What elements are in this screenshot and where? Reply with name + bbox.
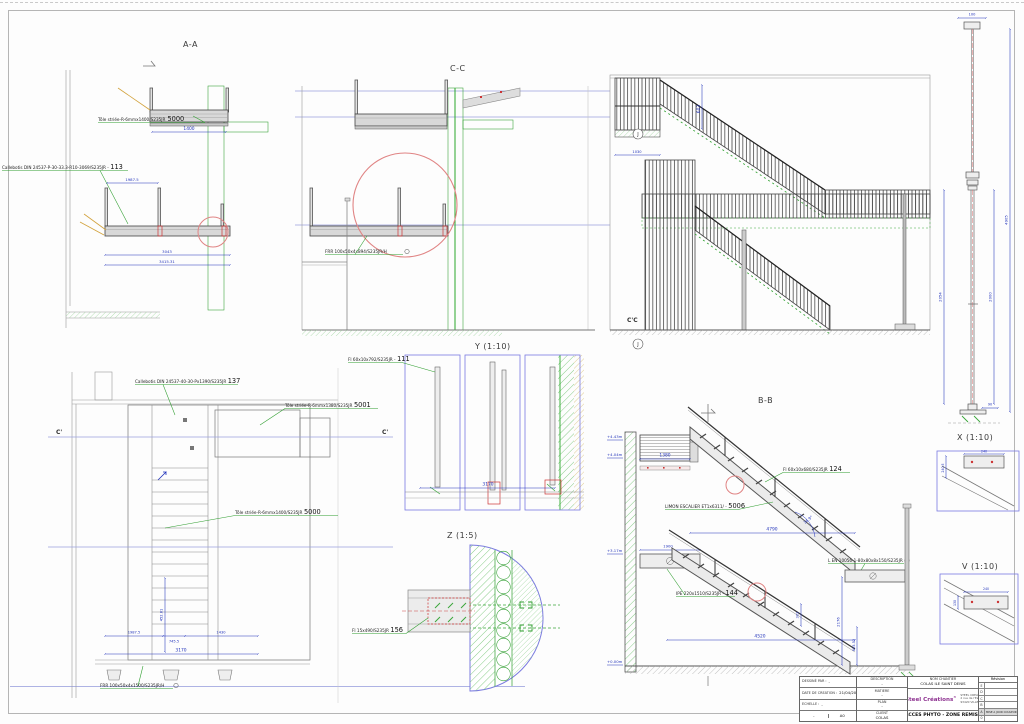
svg-text:Tôle striée-R-6mmx1400/S235JR5: Tôle striée-R-6mmx1400/S235JR5000 <box>97 115 184 123</box>
dim-label: 745.5 <box>169 640 179 644</box>
part-label: Callebotis DIN 24537-P-30-33.3-R10-3069/… <box>2 165 109 170</box>
part-mark: 124 <box>829 465 842 473</box>
part-label: LIMON ESCALIER ET1x6311/ - <box>665 504 727 509</box>
cc-floor <box>302 330 595 336</box>
field-value: - <box>813 714 814 718</box>
dim-label: 3415.31 <box>159 259 175 264</box>
revision-text <box>985 696 1017 702</box>
dim-label: 4790 <box>766 527 777 533</box>
part-label: FRR 100x50x4x1500/S235JR/H <box>100 683 164 688</box>
view-x-detail: 240 240.5 <box>934 448 1022 514</box>
dim-label: 452.81 <box>160 609 164 622</box>
revision-text <box>985 702 1017 708</box>
brand-logo: S Steel Créations® STEEL CREATIONS 2 rue… <box>908 694 978 704</box>
view-title-aa: A-A <box>183 40 198 49</box>
part-mark: 5000 <box>304 508 321 516</box>
dim-label: 3170 <box>482 482 493 488</box>
part-mark: 144 <box>725 589 738 597</box>
field-label: DATE DE CREATION : <box>802 692 837 696</box>
tb-revision-column: Révision E D C B AMISE A JOUR COULEUR - … <box>979 677 1017 721</box>
tb-main-column: NOM CHANTIERCOLAS ILE SAINT DENIS S Stee… <box>908 677 979 721</box>
level-label: +0.00m <box>607 659 623 664</box>
view-v: 240 130 <box>936 556 1022 648</box>
cc-center-wall <box>448 88 513 330</box>
dim-label: 1380 <box>659 453 670 459</box>
elev-lower-flight-railing <box>695 206 830 334</box>
section-marker: C' <box>382 429 388 436</box>
svg-text:LIMON ESCALIER ET1x6311/ -5006: LIMON ESCALIER ET1x6311/ -5006 <box>665 502 745 510</box>
bb-left-wall <box>625 432 636 672</box>
level-label: +3.17m <box>607 548 623 553</box>
svg-text:Fl 60x10x680/S235JR124: Fl 60x10x680/S235JR124 <box>783 465 842 473</box>
level-label: +4.43m <box>607 434 623 439</box>
part-label: Fl 60x10x792/S235JR - <box>348 357 396 362</box>
marker-label: J <box>636 132 638 138</box>
dim-label: 1400 <box>183 126 194 132</box>
dim-label: 100 <box>969 13 977 17</box>
elev-support-column <box>742 230 746 330</box>
field-value: - <box>829 680 830 684</box>
part-label: Tôle striée-R-6mmx1400/S235JR <box>234 510 303 515</box>
field-label: DESSINÉ PAR : <box>802 680 827 684</box>
part-mark: 156 <box>390 626 403 634</box>
elev-top-left-railing <box>615 78 660 137</box>
plan-bottom-wall <box>95 660 310 680</box>
dim-label: 1430 <box>216 631 226 635</box>
view-aa: 1400 Tôle striée-R-6mmx1400/S235JR5000 C… <box>0 56 290 336</box>
company-address: STEEL CREATIONS 2 rue de l'Espérance 934… <box>960 694 978 704</box>
cc-top-platform <box>355 80 448 129</box>
svg-text:Tôle striée-R-6mmx1400/S235JR5: Tôle striée-R-6mmx1400/S235JR5000 <box>234 508 321 516</box>
dim-label: 1030 <box>632 150 642 154</box>
view-x: 100 2054 2000 4905 90 <box>930 4 1022 452</box>
revision-text <box>985 683 1017 689</box>
y-panel-1 <box>405 355 460 510</box>
bb-limon-label: LIMON ESCALIER ET1x6311/ -5006 <box>665 502 773 510</box>
part-mark: 137 <box>228 377 241 385</box>
revision-table: Révision E D C B AMISE A JOUR COULEUR - … <box>979 677 1017 721</box>
cc-frr-label: FRR 100x50x4x894/S235JR/H <box>325 236 409 255</box>
bb-right-landing-beam <box>845 570 905 582</box>
elev-left-shaft <box>645 160 695 330</box>
revision-text: MISE A JOUR COULEUR - INDICE <box>985 709 1017 715</box>
dim-label: 240.5 <box>941 463 945 472</box>
field-value: 21/04/2023 <box>839 691 856 695</box>
svg-text:Tôle striée-R-6mmx1380/S235JR5: Tôle striée-R-6mmx1380/S235JR5001 <box>284 401 371 409</box>
v-content: 240 130 <box>944 580 1014 642</box>
dim-label: 302 <box>796 612 800 619</box>
title-block: DESSINÉ PAR :- DATE DE CREATION :21/04/2… <box>799 676 1018 722</box>
drawing-sheet: { "colors":{"dim_blue":"#2233bb","level_… <box>0 0 1024 724</box>
format-value: A0 <box>840 714 845 718</box>
elev-ground <box>610 330 930 335</box>
section-label: C'C <box>627 317 638 324</box>
part-mark: 5000 <box>167 115 184 123</box>
aa-section-arrow <box>143 61 155 66</box>
dim-label: 2176 <box>836 617 841 627</box>
plan-tole1380-label: Tôle striée-R-6mmx1380/S235JR5001 <box>260 401 378 425</box>
bb-right-post <box>899 504 915 677</box>
plan-treads <box>152 468 208 624</box>
view-cc: FRR 100x50x4x894/S235JR/H <box>295 56 610 346</box>
svg-text:Callebotis DIN 24537-P-30-33.3: Callebotis DIN 24537-P-30-33.3-R10-3069/… <box>2 163 123 171</box>
plan-shaft <box>128 405 330 660</box>
elev-marker-j-bottom: J <box>633 339 643 349</box>
dim-label: 603 <box>696 105 702 114</box>
aa-walls <box>66 70 268 328</box>
dim-label: 240 <box>981 450 987 454</box>
field-value: - <box>881 682 882 686</box>
marker-label: J <box>636 342 638 348</box>
registered-mark: ® <box>953 695 956 699</box>
field-value: - <box>881 704 882 708</box>
part-label: Fl 15x490/S235JR <box>352 628 389 633</box>
view-bb: 1380 Fl 60x10x680/S235JR124 LIMON ESCALI… <box>605 382 940 687</box>
svg-text:IPE 220x1510/S235JR -144: IPE 220x1510/S235JR -144 <box>676 589 738 597</box>
field-value: - <box>821 703 822 707</box>
part-mark: 5001 <box>354 401 371 409</box>
bb-top-platform <box>640 435 698 470</box>
z-hatch <box>470 545 587 691</box>
view-cc-elevation: J J C'C 603 1030 <box>597 56 937 348</box>
plan-caillebotis-label: Callebotis DIN 24537-40-30-Px1390/S235JR… <box>135 377 240 415</box>
company-line: 93420 VILLEPINTE <box>960 701 978 704</box>
aa-lower-platform <box>80 188 230 236</box>
part-label: IPE 220x1510/S235JR - <box>676 591 724 596</box>
svg-text:Fl 60x10x792/S235JR -111: Fl 60x10x792/S235JR -111 <box>348 355 410 363</box>
dim-label: 240 <box>983 587 989 591</box>
level-label: +4.04m <box>607 452 623 457</box>
revision-text <box>985 716 1017 722</box>
section-marker: C' <box>56 429 62 436</box>
svg-text:Fl 15x490/S235JR156: Fl 15x490/S235JR156 <box>352 626 403 634</box>
dim-label: 2054 <box>938 292 943 302</box>
revision-row: 0 <box>979 716 1017 722</box>
cc-detail-circle <box>353 153 457 257</box>
dim-label: 2000 <box>988 292 993 302</box>
x-foot <box>948 404 1000 423</box>
xd-content: 240 240.5 <box>941 450 1014 511</box>
svg-text:Callebotis DIN 24537-40-30-Px1: Callebotis DIN 24537-40-30-Px1390/S235JR… <box>135 377 240 385</box>
tb-mid-column: DESCRIPTION- MATIERE- PLAN- CLIENTCOLAS <box>857 677 908 721</box>
sheet-top-edge <box>0 2 1024 3</box>
elev-marker-j-top: J <box>633 129 643 139</box>
field-label: ECHELLE : <box>802 703 819 707</box>
bb-detail-circle-1 <box>726 476 744 494</box>
brand-text: Steel Créations <box>908 697 953 703</box>
field-value: - <box>881 693 882 697</box>
cc-hanger-rod <box>302 198 350 330</box>
x-post <box>964 22 980 404</box>
dim-label: 1987.5 <box>125 177 139 182</box>
cc-mid-platform <box>310 188 448 236</box>
chantier-value: COLAS ILE SAINT DENIS <box>920 682 965 686</box>
part-label: Tôle striée-R-6mmx1380/S235JR <box>284 403 353 408</box>
part-mark: 113 <box>110 163 123 171</box>
revision-text <box>985 689 1017 695</box>
view-z: Fl 15x490/S235JR156 <box>340 522 570 707</box>
dim-label: 625.52 <box>852 639 856 652</box>
y-posts <box>405 362 584 504</box>
dim-label: 4905 <box>1004 215 1009 225</box>
aa-caillebotis-label: Callebotis DIN 24537-P-30-33.3-R10-3069/… <box>2 163 128 224</box>
plan-walls <box>72 368 338 703</box>
bb-levels: +4.43m +4.04m +3.17m +0.00m <box>607 434 623 665</box>
dim-label: 90 <box>988 403 992 407</box>
dim-label: 130 <box>953 600 957 606</box>
dim-label: 1987.5 <box>128 631 141 635</box>
cc-level-lines <box>295 91 610 225</box>
part-mark: 111 <box>397 355 410 363</box>
part-label: L EN 10056-1-80x80x8x150/S235JR <box>828 558 903 563</box>
part-label: Tôle striée-R-6mmx1400/S235JR <box>97 117 166 122</box>
drawing-title: ACCES PHYTO - ZONE REMISE <box>908 713 978 718</box>
dim-label: 3043 <box>162 249 172 254</box>
tb-left-column: DESSINÉ PAR :- DATE DE CREATION :21/04/2… <box>800 677 857 721</box>
brand-name: Steel Créations® <box>908 695 956 703</box>
z-tube <box>402 590 475 632</box>
bb-floor <box>625 666 910 674</box>
dim-label: 4520 <box>754 634 765 640</box>
bb-upper-flight <box>688 407 860 574</box>
plan-up-arrow <box>158 472 166 480</box>
part-label: Fl 60x10x680/S235JR <box>783 467 828 472</box>
plan-tole1400-label: Tôle striée-R-6mmx1400/S235JR5000 <box>165 508 338 528</box>
part-label: Callebotis DIN 24537-40-30-Px1390/S235JR <box>135 379 226 384</box>
field-value: COLAS <box>876 716 889 720</box>
dim-label: 3170 <box>175 648 186 654</box>
